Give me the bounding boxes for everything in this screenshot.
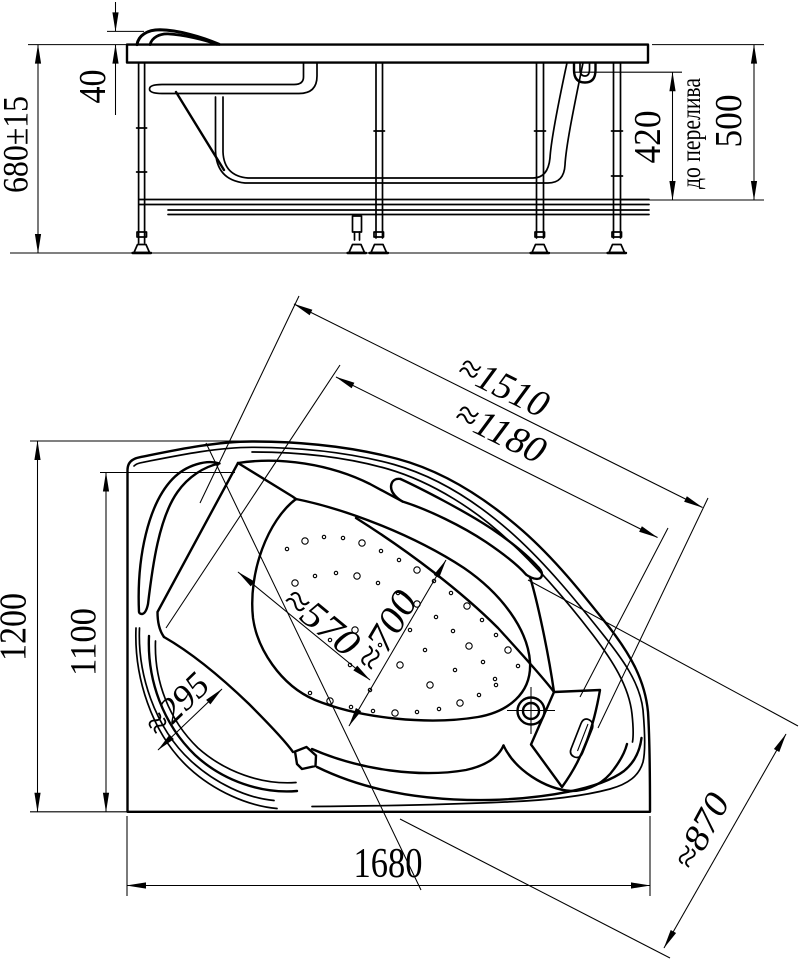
svg-text:1100: 1100	[64, 608, 105, 676]
svg-text:40: 40	[72, 70, 114, 104]
svg-text:1680: 1680	[354, 841, 423, 887]
svg-text:≈870: ≈870	[664, 786, 737, 875]
svg-text:500: 500	[708, 95, 750, 148]
svg-text:680±15: 680±15	[0, 96, 36, 193]
svg-text:до перелива: до перелива	[675, 78, 706, 189]
svg-text:420: 420	[627, 111, 669, 164]
svg-text:1200: 1200	[0, 593, 35, 661]
